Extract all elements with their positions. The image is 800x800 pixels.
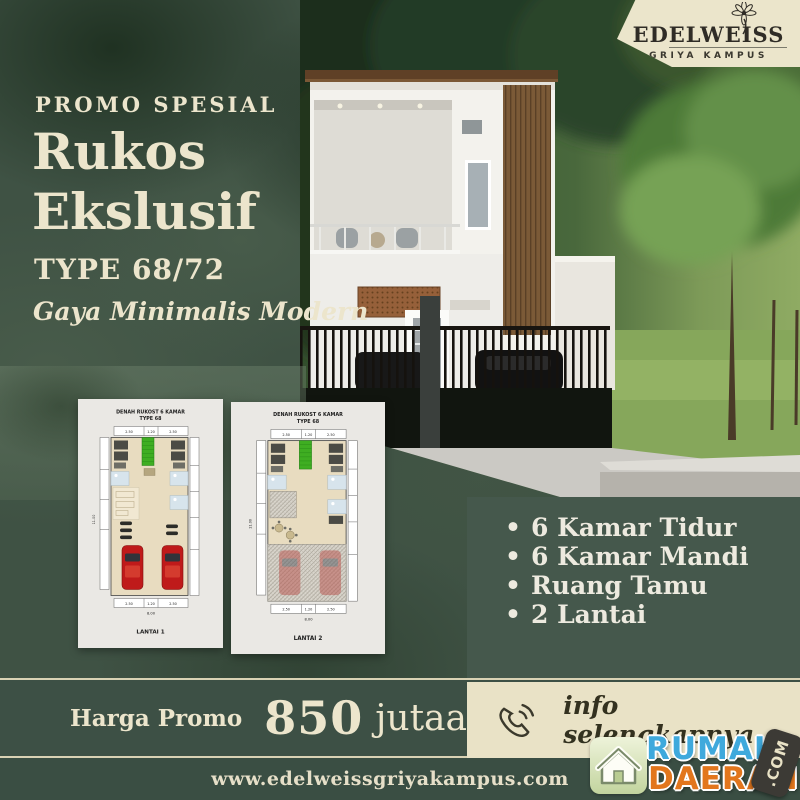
bullet-icon: •: [505, 571, 531, 600]
bullet-icon: •: [505, 600, 531, 629]
dim-label: 1.20: [305, 608, 313, 612]
rumahdaerah-watermark-logo: RUMAH DAERAH .COM: [588, 731, 800, 800]
website-url: www.edelweissgriyakampus.com: [211, 768, 569, 790]
floorplan-card-lantai-1: DENAH RUKOST 6 KAMAR TYPE 68 2.50 1.20 2…: [78, 399, 223, 648]
dim-label: 2.50: [125, 602, 133, 606]
headline-style: Gaya Minimalis Modern: [33, 297, 368, 326]
floorplan-card-lantai-2: DENAH RUKOST 6 KAMAR TYPE 68 2.50 1.20 2…: [231, 402, 385, 654]
house-icon-tile: [590, 737, 647, 794]
features-list: •6 Kamar Tidur •6 Kamar Mandi •Ruang Tam…: [467, 497, 800, 629]
house-icon: [590, 737, 647, 794]
features-panel: •6 Kamar Tidur •6 Kamar Mandi •Ruang Tam…: [467, 497, 800, 678]
plan-title-line2: TYPE 68: [297, 419, 320, 425]
brand-name: EDELWEISS: [617, 22, 800, 47]
plan-floor-label: LANTAI 2: [294, 636, 323, 642]
dim-label: 2.50: [282, 608, 290, 612]
dim-label: 1.20: [147, 430, 155, 434]
plan-title-line2: TYPE 68: [140, 416, 163, 422]
headline-title-line2: Ekslusif: [32, 182, 257, 242]
dim-label: 11.00: [249, 519, 253, 529]
dim-label: 11.00: [92, 515, 96, 525]
brand-rule: [669, 47, 787, 48]
feature-item: •Ruang Tamu: [505, 571, 800, 600]
dim-label: 2.50: [169, 430, 177, 434]
price-amount: 850: [264, 691, 363, 745]
feature-label: 6 Kamar Mandi: [531, 542, 749, 571]
watermark-com-label: .COM: [761, 737, 793, 789]
floorplan-drawing-1: DENAH RUKOST 6 KAMAR TYPE 68 2.50 1.20 2…: [78, 399, 223, 648]
feature-item: •2 Lantai: [505, 600, 800, 629]
poster-canvas: EDELWEISS GRIYA KAMPUS PROMO SPESIAL Ruk…: [0, 0, 800, 800]
phone-icon: [491, 693, 541, 747]
dim-label: 1.20: [305, 433, 313, 437]
promo-eyebrow: PROMO SPESIAL: [35, 92, 277, 117]
dim-label: 2.50: [282, 433, 290, 437]
feature-item: •6 Kamar Mandi: [505, 542, 800, 571]
bullet-icon: •: [505, 513, 531, 542]
dim-label: 2.50: [169, 602, 177, 606]
dim-label: 2.50: [125, 430, 133, 434]
feature-label: Ruang Tamu: [531, 571, 708, 600]
dim-label: 8.00: [304, 617, 313, 621]
dim-label: 1.20: [147, 602, 155, 606]
bullet-icon: •: [505, 542, 531, 571]
plan-title-line1: DENAH RUKOST 6 KAMAR: [116, 410, 185, 416]
dim-label: 2.50: [327, 433, 335, 437]
feature-label: 2 Lantai: [531, 600, 646, 629]
feature-label: 6 Kamar Tidur: [531, 513, 736, 542]
dim-label: 2.50: [327, 608, 335, 612]
dim-label: 8.00: [147, 612, 156, 616]
floorplan-drawing-2: DENAH RUKOST 6 KAMAR TYPE 68 2.50 1.20 2…: [231, 402, 385, 654]
headline-title: Rukos Ekslusif: [32, 122, 257, 242]
headline-type: TYPE 68/72: [34, 253, 225, 286]
feature-item: •6 Kamar Tidur: [505, 513, 800, 542]
price-label: Harga Promo: [70, 705, 242, 732]
headline-title-line1: Rukos: [32, 122, 257, 182]
plan-title-line1: DENAH RUKOST 6 KAMAR: [273, 412, 343, 418]
plan-floor-label: LANTAI 1: [136, 630, 164, 636]
